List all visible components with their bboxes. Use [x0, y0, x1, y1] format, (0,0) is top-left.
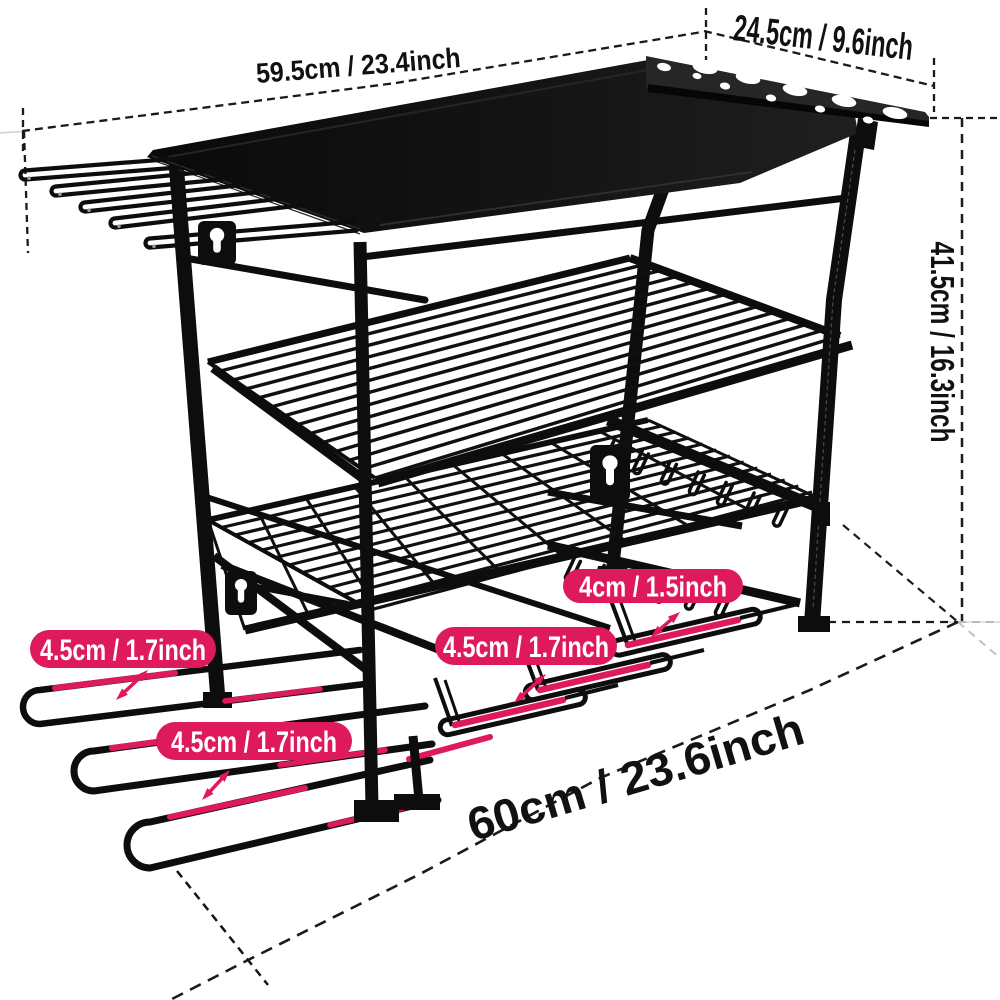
- svg-text:4.5cm / 1.7inch: 4.5cm / 1.7inch: [40, 634, 206, 667]
- svg-text:4.5cm / 1.7inch: 4.5cm / 1.7inch: [443, 631, 609, 664]
- svg-text:4.5cm / 1.7inch: 4.5cm / 1.7inch: [171, 726, 337, 759]
- svg-text:4cm / 1.5inch: 4cm / 1.5inch: [579, 571, 727, 603]
- svg-text:41.5cm / 16.3inch: 41.5cm / 16.3inch: [924, 242, 961, 443]
